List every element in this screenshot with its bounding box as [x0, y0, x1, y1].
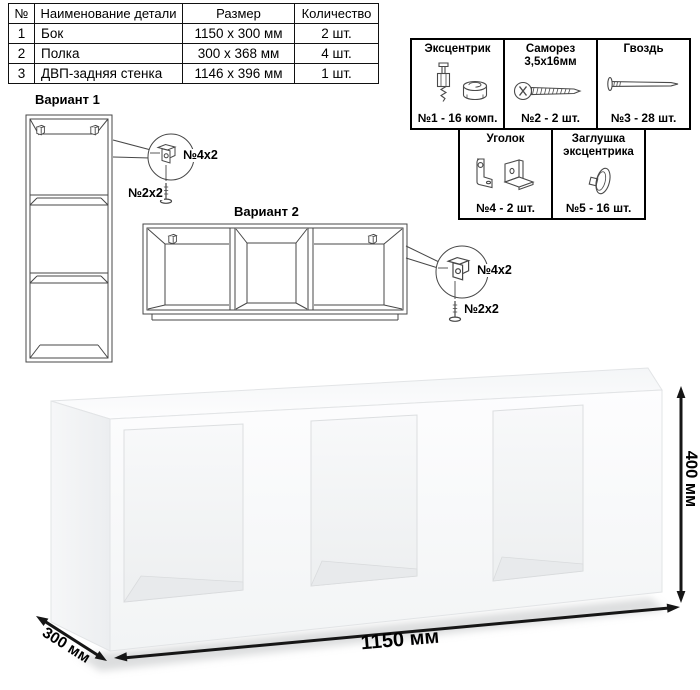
shelf-left-face	[51, 401, 110, 651]
hardware-qty: №1 - 16 комп.	[418, 112, 498, 124]
hardware-cell-bracket: Уголок №4 - 2 шт.	[458, 128, 553, 220]
table-cell: 1150 x 300 мм	[183, 24, 295, 44]
table-cell: 2	[9, 44, 35, 64]
hardware-cell-cap: Заглушка эксцентрика №5 - 16 шт.	[551, 128, 646, 220]
table-header-size: Размер	[183, 4, 295, 24]
table-cell: 300 x 368 мм	[183, 44, 295, 64]
hardware-name: Заглушка эксцентрика	[553, 133, 644, 159]
table-header-part: Наименование детали	[35, 4, 183, 24]
shelf-compartment-1	[124, 424, 243, 602]
table-cell: Бок	[35, 24, 183, 44]
height-dimension-label: 400 мм	[681, 439, 699, 519]
assembly-instruction-sheet: № Наименование детали Размер Количество …	[0, 0, 700, 690]
hardware-qty: №2 - 2 шт.	[521, 112, 580, 124]
shelf-compartment-2	[311, 415, 417, 586]
cam-cap-icon	[553, 159, 644, 202]
nail-icon	[598, 56, 689, 112]
variant2-shelf-drawing	[143, 224, 407, 320]
corner-bracket-icon	[460, 146, 551, 202]
variant1-screw-label: №2х2	[127, 187, 164, 200]
table-header-qty: Количество	[295, 4, 379, 24]
table-cell: 2 шт.	[295, 24, 379, 44]
hardware-qty: №3 - 28 шт.	[611, 112, 677, 124]
hardware-name: Эксцентрик	[424, 43, 490, 56]
variant1-title: Вариант 1	[35, 93, 100, 106]
table-cell: 3	[9, 64, 35, 84]
self-tapping-screw-icon	[505, 69, 596, 112]
hardware-qty: №5 - 16 шт.	[566, 202, 632, 214]
eccentric-cam-icon	[412, 56, 503, 112]
hardware-name: Гвоздь	[623, 43, 663, 56]
parts-table: № Наименование детали Размер Количество …	[8, 3, 379, 84]
shelf-3d-render	[51, 368, 666, 671]
variant1-shelf-drawing	[26, 115, 112, 362]
variant2-title: Вариант 2	[234, 205, 299, 218]
shelf-compartment-3	[493, 405, 583, 581]
hardware-cell-eccentric: Эксцентрик №1 - 16 комп.	[410, 38, 505, 130]
variant1-bracket-label: №4х2	[182, 149, 219, 162]
hardware-cell-screw: Саморез 3,5х16мм №2 - 2 шт.	[503, 38, 598, 130]
table-cell: 1 шт.	[295, 64, 379, 84]
variant2-screw-label: №2х2	[463, 303, 500, 316]
table-cell: 4 шт.	[295, 44, 379, 64]
table-cell: 1146 x 396 мм	[183, 64, 295, 84]
hardware-qty: №4 - 2 шт.	[476, 202, 535, 214]
hardware-cell-nail: Гвоздь №3 - 28 шт.	[596, 38, 691, 130]
variant2-bracket-label: №4х2	[476, 264, 513, 277]
screw-icon	[450, 301, 461, 321]
table-cell: 1	[9, 24, 35, 44]
hardware-name: Саморез 3,5х16мм	[505, 43, 596, 69]
hardware-name: Уголок	[486, 133, 524, 146]
table-header-number: №	[9, 4, 35, 24]
table-cell: Полка	[35, 44, 183, 64]
table-cell: ДВП-задняя стенка	[35, 64, 183, 84]
